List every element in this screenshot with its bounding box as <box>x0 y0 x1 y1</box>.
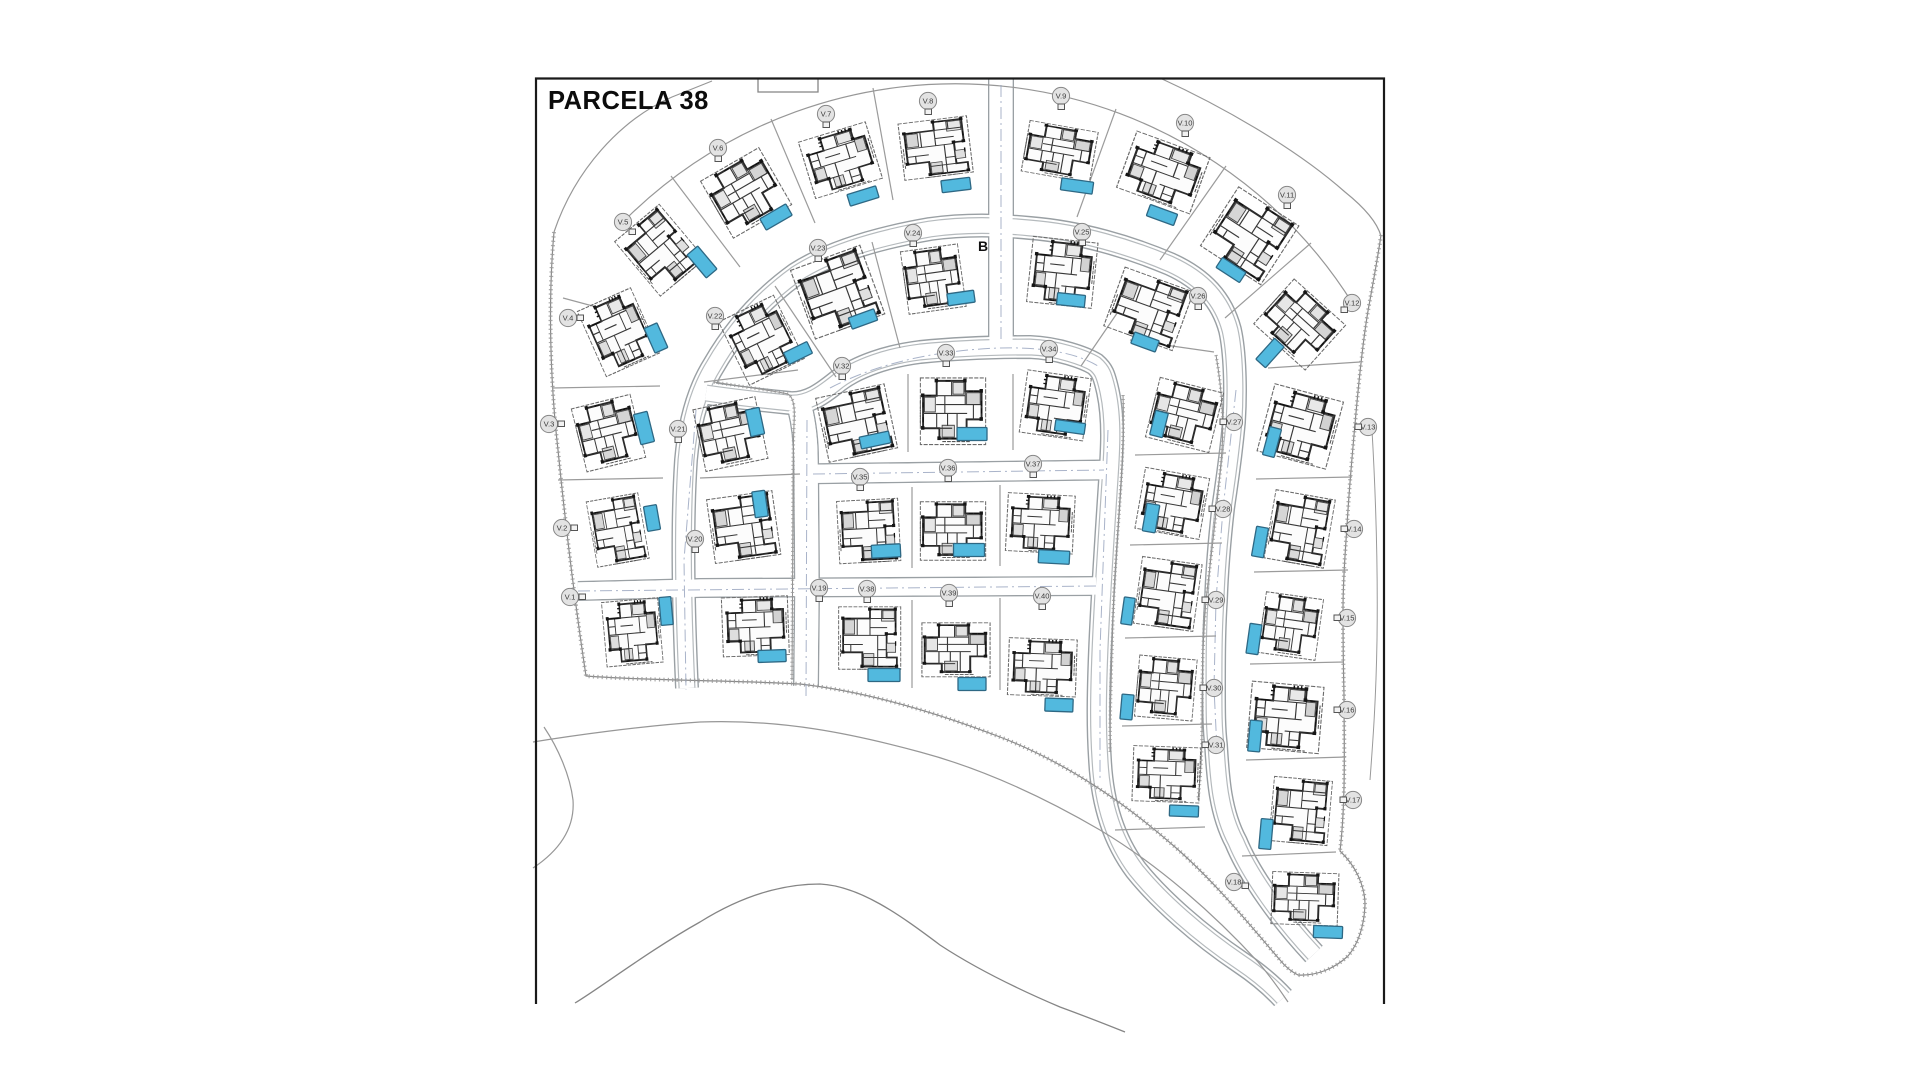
svg-text:V.34: V.34 <box>1042 345 1057 354</box>
svg-text:V.7: V.7 <box>821 110 832 119</box>
svg-text:V.37: V.37 <box>1026 460 1041 469</box>
svg-text:V.36: V.36 <box>941 464 956 473</box>
svg-text:V.11: V.11 <box>1280 191 1294 200</box>
svg-text:V.29: V.29 <box>1209 596 1224 605</box>
svg-text:V.12: V.12 <box>1345 299 1360 308</box>
svg-text:V.28: V.28 <box>1216 505 1231 514</box>
svg-text:V.40: V.40 <box>1035 592 1050 601</box>
svg-text:V.14: V.14 <box>1347 525 1362 534</box>
svg-text:V.38: V.38 <box>860 585 875 594</box>
svg-text:V.32: V.32 <box>835 362 850 371</box>
svg-text:V.21: V.21 <box>671 425 686 434</box>
svg-text:V.33: V.33 <box>939 349 954 358</box>
svg-text:V.10: V.10 <box>1178 119 1193 128</box>
svg-text:V.15: V.15 <box>1340 614 1355 623</box>
svg-text:V.8: V.8 <box>923 97 934 106</box>
svg-text:V.1: V.1 <box>565 593 576 602</box>
svg-text:V.22: V.22 <box>708 312 723 321</box>
svg-text:V.9: V.9 <box>1056 92 1067 101</box>
svg-text:V.27: V.27 <box>1227 418 1242 427</box>
svg-text:V.16: V.16 <box>1340 706 1355 715</box>
svg-text:V.5: V.5 <box>618 218 629 227</box>
svg-text:V.24: V.24 <box>906 229 921 238</box>
svg-text:V.4: V.4 <box>563 314 574 323</box>
svg-text:V.25: V.25 <box>1075 228 1090 237</box>
svg-text:V.39: V.39 <box>942 589 957 598</box>
svg-text:B: B <box>978 238 988 254</box>
svg-text:V.17: V.17 <box>1346 796 1361 805</box>
svg-text:V.20: V.20 <box>688 535 703 544</box>
svg-text:V.18: V.18 <box>1227 878 1242 887</box>
svg-text:V.6: V.6 <box>713 144 724 153</box>
svg-text:V.3: V.3 <box>544 420 555 429</box>
svg-text:V.26: V.26 <box>1191 292 1206 301</box>
svg-text:V.19: V.19 <box>812 584 827 593</box>
svg-text:V.23: V.23 <box>811 244 826 253</box>
svg-text:V.35: V.35 <box>853 473 868 482</box>
svg-text:V.2: V.2 <box>557 524 568 533</box>
svg-text:V.30: V.30 <box>1207 684 1222 693</box>
svg-text:V.13: V.13 <box>1361 423 1376 432</box>
svg-text:PARCELA 38: PARCELA 38 <box>548 87 709 115</box>
svg-text:V.31: V.31 <box>1209 741 1224 750</box>
